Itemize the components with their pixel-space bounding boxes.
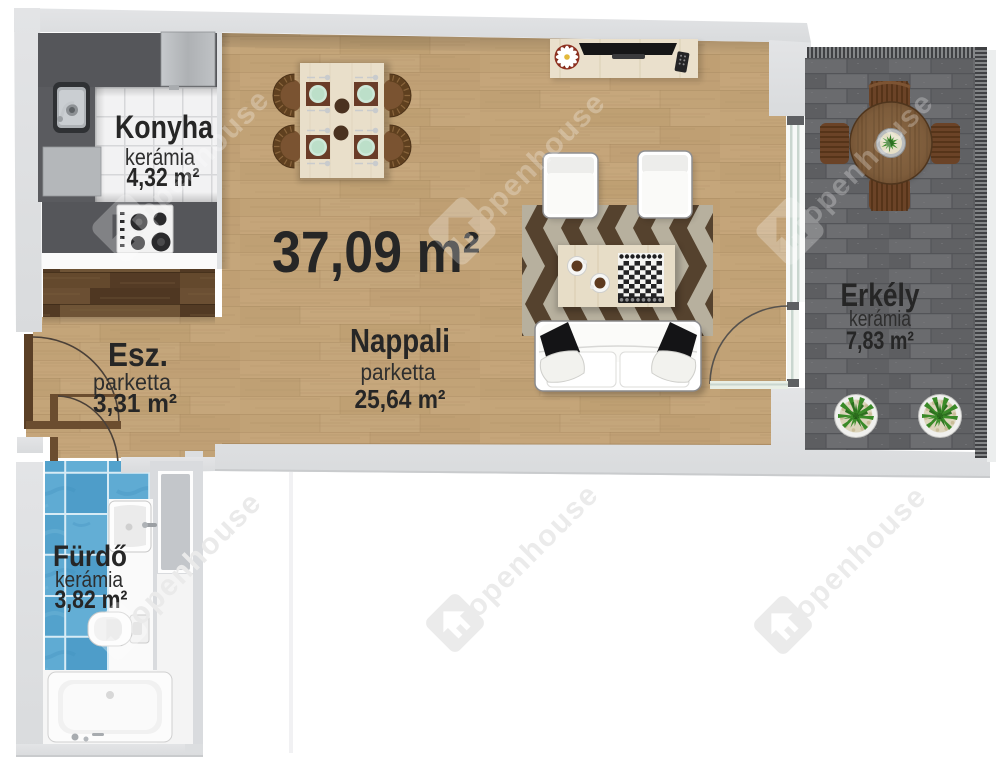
svg-text:25,64 m²: 25,64 m²	[355, 384, 446, 414]
svg-text:3,31 m²: 3,31 m²	[93, 388, 177, 418]
svg-text:Esz.: Esz.	[108, 336, 168, 373]
svg-text:Nappali: Nappali	[350, 322, 450, 359]
svg-text:7,83 m²: 7,83 m²	[846, 327, 914, 355]
svg-text:parketta: parketta	[361, 359, 436, 385]
